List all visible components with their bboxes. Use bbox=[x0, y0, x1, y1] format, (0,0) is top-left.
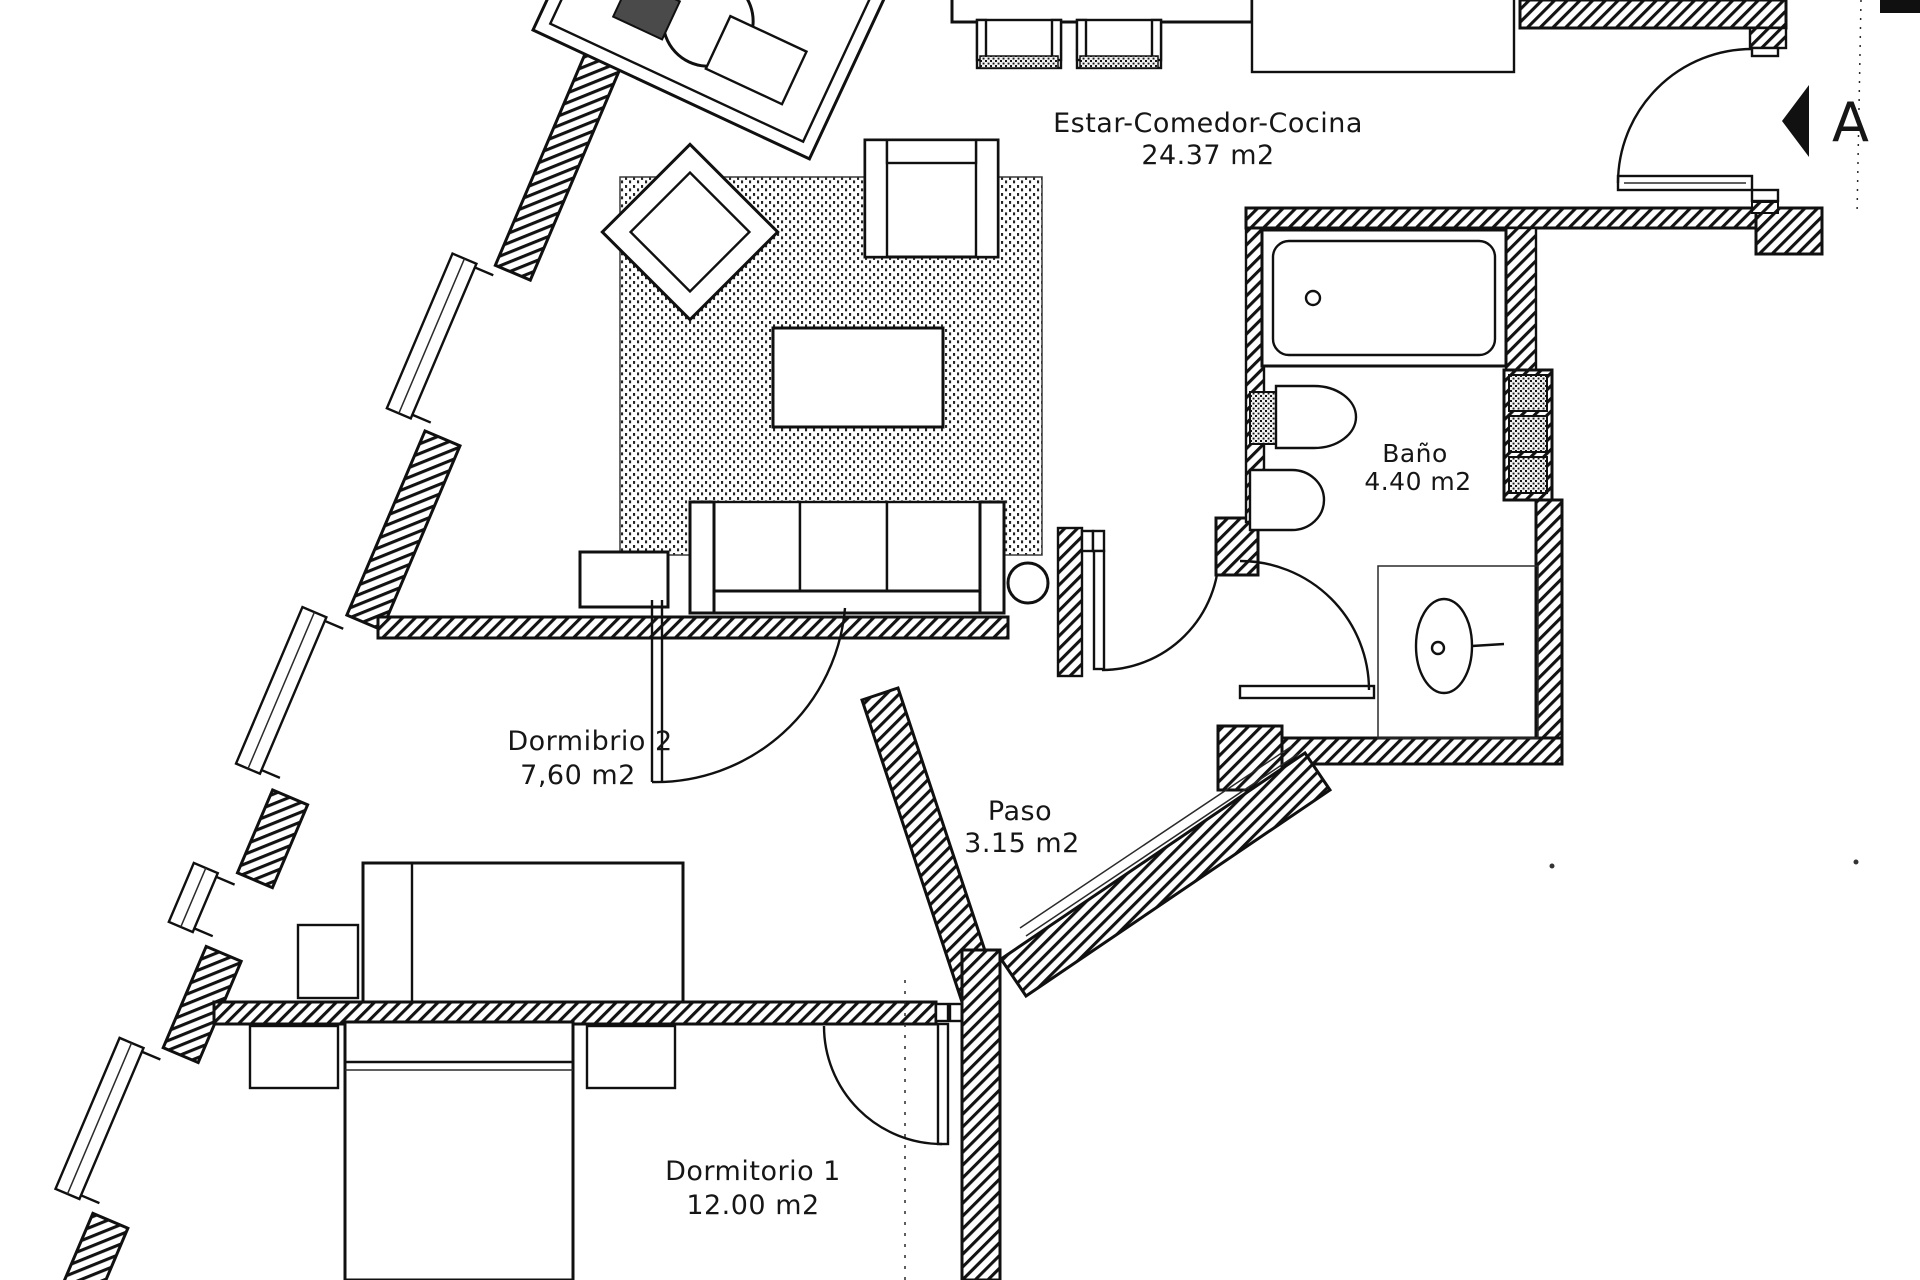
sofa-cushion-2 bbox=[800, 502, 887, 591]
dining-table bbox=[952, 0, 1252, 22]
bano-right-wall-lower bbox=[1536, 500, 1562, 740]
label-estar-name: Estar-Comedor-Cocina bbox=[1053, 108, 1363, 139]
sink-unit bbox=[1378, 566, 1538, 738]
bathtub bbox=[1262, 230, 1506, 366]
bano-top-wall-step bbox=[1756, 208, 1822, 254]
label-paso-name: Paso bbox=[988, 796, 1052, 827]
door-leaf-bano bbox=[1240, 686, 1374, 698]
label-dorm1-name: Dormitorio 1 bbox=[665, 1156, 841, 1187]
facade-wall-segment-3 bbox=[237, 790, 307, 888]
entry-door-frame-side-2 bbox=[1752, 202, 1778, 213]
nightstand-dorm2 bbox=[298, 925, 358, 998]
sofa-cushion-1 bbox=[714, 502, 800, 591]
dim-dot-2 bbox=[1854, 860, 1859, 865]
door-frame-dorm1-2 bbox=[950, 1004, 962, 1021]
sofa bbox=[690, 502, 1004, 613]
door-arc-dorm1 bbox=[824, 1026, 942, 1144]
section-marker: A bbox=[1782, 85, 1869, 157]
bidet bbox=[1250, 470, 1324, 530]
side-table-left bbox=[580, 552, 668, 607]
sofa-left-arm bbox=[690, 502, 714, 613]
bano-bottom-wall bbox=[1280, 738, 1562, 764]
label-bano-area: 4.40 m2 bbox=[1364, 467, 1471, 496]
toilet bbox=[1250, 386, 1356, 448]
label-estar-area: 24.37 m2 bbox=[1141, 140, 1274, 171]
entry-door-arc bbox=[1618, 49, 1752, 183]
door-arc-bano bbox=[1240, 561, 1369, 690]
coffee-table bbox=[773, 328, 943, 427]
sink-drain bbox=[1432, 642, 1444, 654]
section-marker-letter: A bbox=[1832, 91, 1869, 154]
label-dorm2-name: Dormibrio 2 bbox=[507, 726, 672, 757]
facade-wall-segment-5 bbox=[56, 1213, 128, 1280]
label-bano-name: Baño bbox=[1382, 439, 1448, 468]
bed-dorm1 bbox=[345, 1022, 573, 1280]
niche-3 bbox=[1509, 457, 1547, 493]
entry-wall-step bbox=[1750, 28, 1786, 48]
wall-stub-living-paso bbox=[1058, 528, 1082, 676]
entry-top-wall bbox=[1520, 0, 1786, 28]
wall-living-dorm2 bbox=[378, 617, 1008, 638]
entry-door-frame-side bbox=[1752, 190, 1778, 201]
door-leaf-living-paso bbox=[1094, 551, 1104, 669]
floor-plan-drawing: A Estar-Comedor-Cocina 24.37 m2 Baño 4.4… bbox=[0, 0, 1920, 1280]
sink-faucet bbox=[1472, 644, 1504, 646]
bano-niche-column bbox=[1504, 370, 1552, 500]
armchair-top-back bbox=[887, 140, 976, 163]
window-4 bbox=[56, 1038, 162, 1207]
dining-chair-2 bbox=[1077, 20, 1161, 68]
section-arrow-icon bbox=[1782, 85, 1809, 157]
door-frame-living-2 bbox=[1093, 531, 1104, 551]
window-3 bbox=[169, 863, 236, 940]
armchair-top-right-arm bbox=[976, 140, 998, 257]
niche-2 bbox=[1509, 416, 1547, 452]
corner-wall-mark bbox=[1880, 0, 1920, 13]
label-dorm1-area: 12.00 m2 bbox=[686, 1190, 819, 1221]
label-dorm2-area: 7,60 m2 bbox=[520, 760, 636, 791]
sofa-seat-front bbox=[714, 591, 980, 613]
nightstand-dorm1-right bbox=[587, 1026, 675, 1088]
facade-wall-segment-1 bbox=[495, 35, 628, 280]
sofa-cushion-3 bbox=[887, 502, 980, 591]
nightstand-dorm1-left bbox=[250, 1026, 338, 1088]
door-arc-living-paso bbox=[1102, 553, 1219, 670]
sofa-right-arm bbox=[980, 502, 1004, 613]
entry-door-frame-top bbox=[1752, 48, 1778, 56]
entry-door bbox=[1618, 49, 1778, 213]
wall-vertical-dorm1 bbox=[962, 950, 1000, 1280]
label-paso-area: 3.15 m2 bbox=[964, 828, 1080, 859]
side-table-round bbox=[1008, 563, 1048, 603]
dining-chair-1 bbox=[977, 20, 1061, 68]
wall-diagonal-paso-se bbox=[1001, 753, 1330, 996]
kitchen-counter bbox=[1252, 0, 1514, 72]
bed-dorm2 bbox=[363, 863, 683, 1002]
bano-right-wall-upper bbox=[1506, 228, 1536, 370]
door-frame-living bbox=[1082, 531, 1093, 551]
floor-plan-page: A Estar-Comedor-Cocina 24.37 m2 Baño 4.4… bbox=[0, 0, 1920, 1280]
door-frame-dorm1 bbox=[936, 1004, 948, 1021]
niche-1 bbox=[1509, 375, 1547, 411]
armchair-top-left-arm bbox=[865, 140, 887, 257]
door-leaf-dorm1 bbox=[938, 1024, 948, 1144]
bano-top-wall bbox=[1246, 208, 1762, 228]
window-1 bbox=[387, 254, 495, 427]
window-2 bbox=[236, 607, 345, 781]
dim-dot-1 bbox=[1550, 864, 1555, 869]
facade-wall-segment-2 bbox=[347, 431, 460, 630]
armchair-top bbox=[865, 140, 998, 257]
wall-dorm2-dorm1 bbox=[214, 1002, 936, 1024]
